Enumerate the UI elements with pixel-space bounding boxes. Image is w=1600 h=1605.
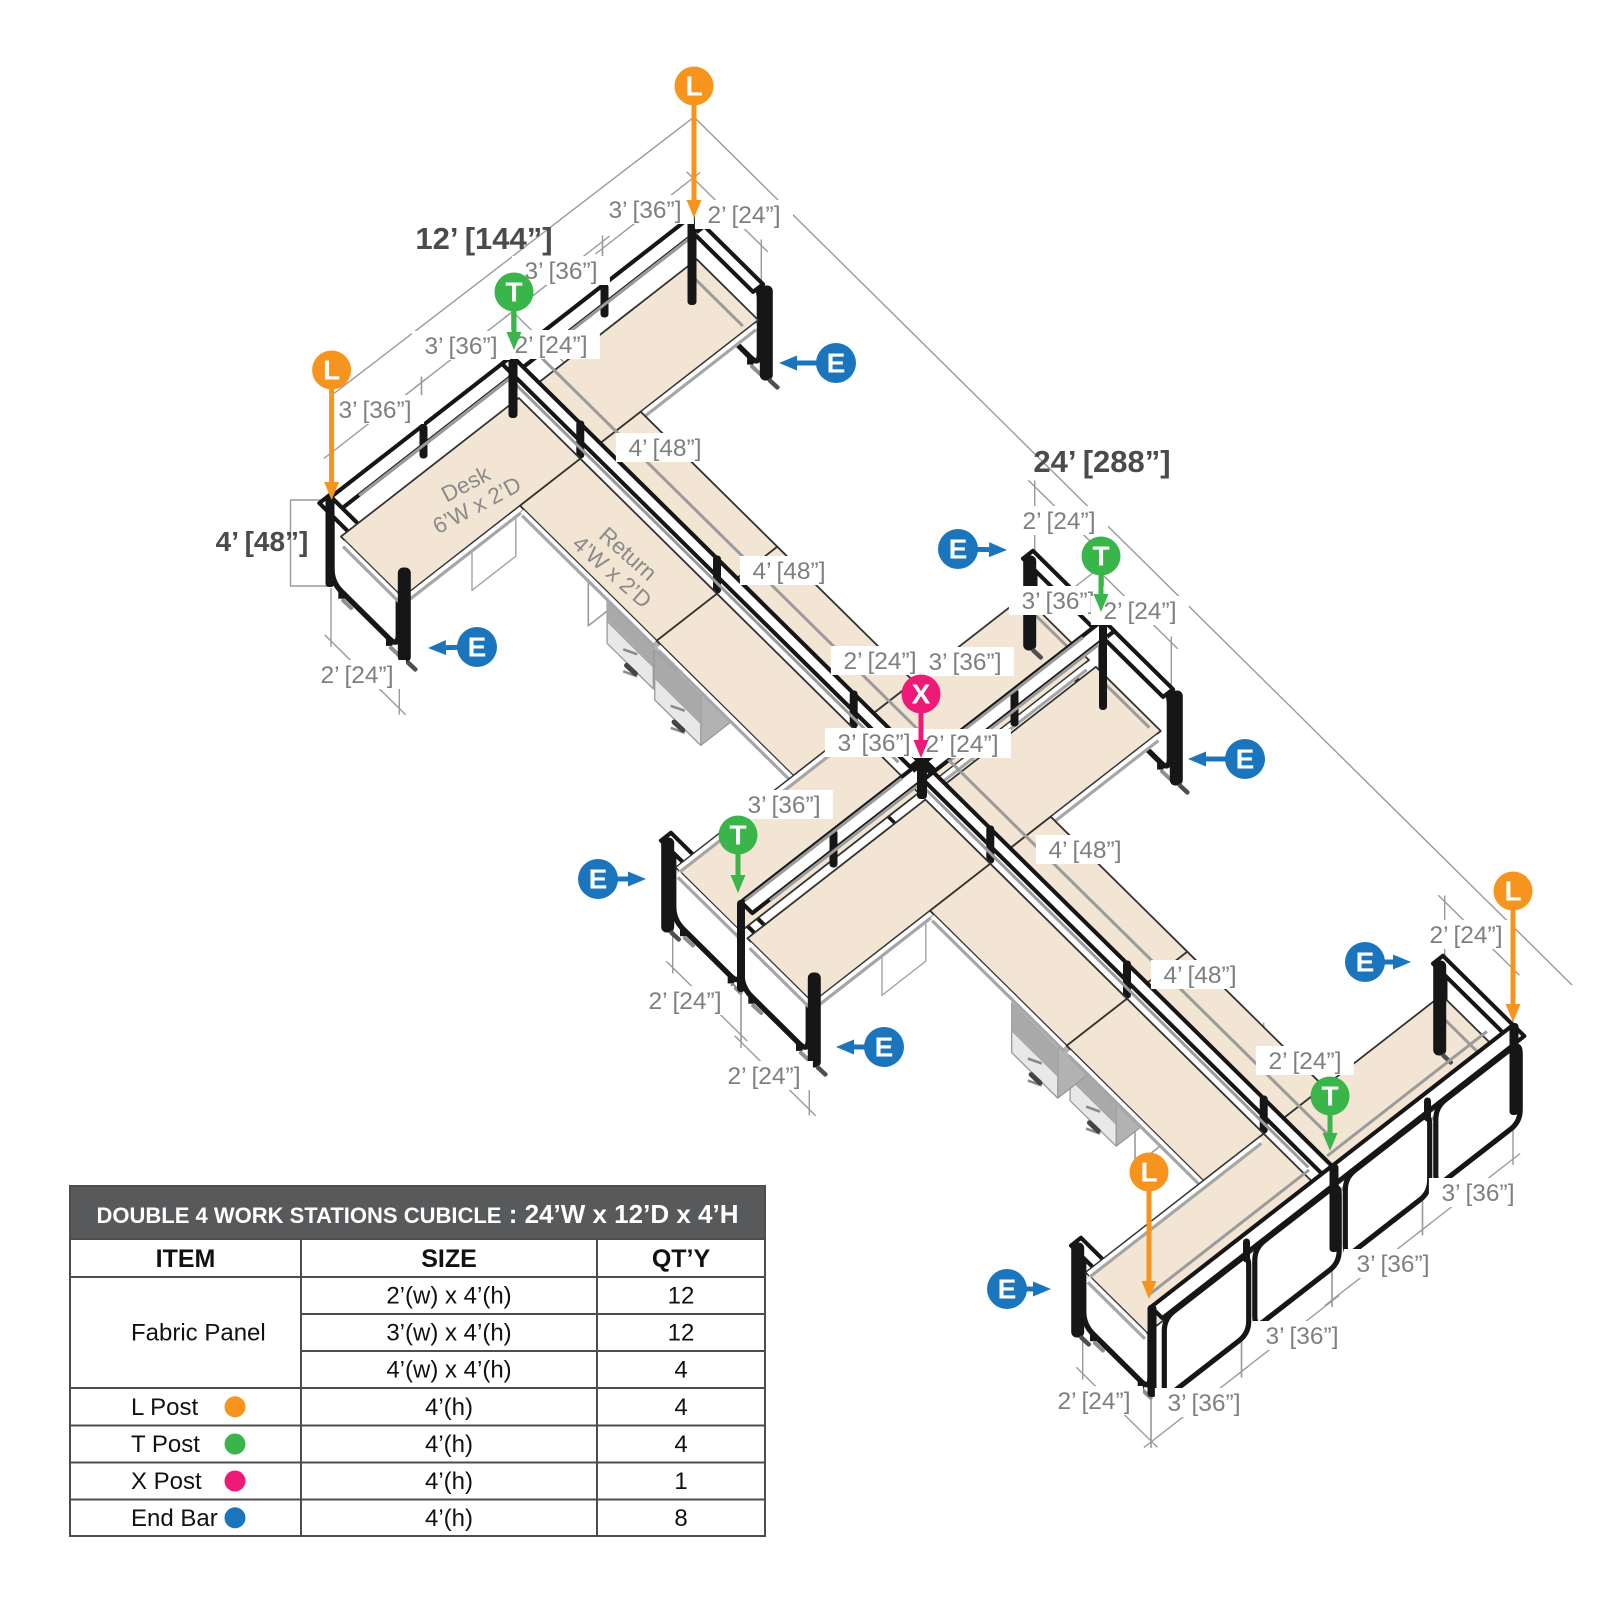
svg-text:24’ [288”]: 24’ [288”] bbox=[1033, 444, 1170, 479]
svg-text:T: T bbox=[1321, 1081, 1338, 1112]
svg-text:4: 4 bbox=[674, 1431, 687, 1458]
svg-text:End Bar: End Bar bbox=[131, 1505, 218, 1532]
svg-text:3’ [36”]: 3’ [36”] bbox=[1266, 1323, 1339, 1350]
svg-text:SIZE: SIZE bbox=[421, 1245, 477, 1273]
svg-text:3’ [36”]: 3’ [36”] bbox=[1442, 1180, 1515, 1207]
svg-text:2’ [24”]: 2’ [24”] bbox=[1023, 508, 1096, 535]
svg-text:L: L bbox=[1140, 1157, 1157, 1188]
svg-text:3’ [36”]: 3’ [36”] bbox=[1357, 1251, 1430, 1278]
svg-text:3’ [36”]: 3’ [36”] bbox=[425, 333, 498, 360]
svg-text:4’ [48”]: 4’ [48”] bbox=[753, 558, 826, 585]
svg-text:2’ [24”]: 2’ [24”] bbox=[1058, 1388, 1131, 1415]
svg-text:L: L bbox=[685, 71, 702, 102]
svg-text:2’ [24”]: 2’ [24”] bbox=[1430, 922, 1503, 949]
svg-text:4’(h): 4’(h) bbox=[425, 1505, 473, 1532]
svg-text:X: X bbox=[912, 679, 931, 710]
svg-text:E: E bbox=[827, 348, 846, 379]
svg-text:L Post: L Post bbox=[131, 1394, 198, 1421]
svg-text:T: T bbox=[1092, 541, 1109, 572]
svg-text:E: E bbox=[875, 1032, 894, 1063]
svg-text:2’ [24”]: 2’ [24”] bbox=[728, 1063, 801, 1090]
svg-text:QT’Y: QT’Y bbox=[652, 1245, 711, 1273]
svg-text:12’ [144”]: 12’ [144”] bbox=[415, 221, 552, 256]
svg-text:2’ [24”]: 2’ [24”] bbox=[515, 332, 588, 359]
svg-text:ITEM: ITEM bbox=[156, 1245, 216, 1273]
svg-text:2’ [24”]: 2’ [24”] bbox=[844, 648, 917, 675]
svg-text:4’ [48”]: 4’ [48”] bbox=[629, 435, 702, 462]
svg-text:DOUBLE 4 WORK STATIONS CUBICL: DOUBLE 4 WORK STATIONS CUBICLE : 24’W x … bbox=[97, 1199, 739, 1229]
svg-text:1: 1 bbox=[674, 1468, 687, 1495]
svg-text:3’ [36”]: 3’ [36”] bbox=[1022, 588, 1095, 615]
svg-text:4’(w) x 4’(h): 4’(w) x 4’(h) bbox=[386, 1357, 511, 1384]
svg-text:3’ [36”]: 3’ [36”] bbox=[609, 197, 682, 224]
svg-text:4: 4 bbox=[674, 1394, 687, 1421]
svg-text:4’ [48”]: 4’ [48”] bbox=[1049, 837, 1122, 864]
svg-text:12: 12 bbox=[668, 1283, 695, 1310]
svg-text:4’ [48”]: 4’ [48”] bbox=[216, 526, 309, 557]
svg-text:3’ [36”]: 3’ [36”] bbox=[1168, 1390, 1241, 1417]
svg-text:2’ [24”]: 2’ [24”] bbox=[649, 988, 722, 1015]
svg-text:2’(w) x 4’(h): 2’(w) x 4’(h) bbox=[386, 1283, 511, 1310]
svg-text:T: T bbox=[729, 820, 746, 851]
svg-text:8: 8 bbox=[674, 1505, 687, 1532]
svg-text:Fabric Panel: Fabric Panel bbox=[131, 1320, 266, 1347]
svg-text:4’(h): 4’(h) bbox=[425, 1431, 473, 1458]
svg-text:2’ [24”]: 2’ [24”] bbox=[321, 662, 394, 689]
svg-text:E: E bbox=[589, 864, 608, 895]
svg-text:E: E bbox=[949, 534, 968, 565]
svg-text:3’ [36”]: 3’ [36”] bbox=[748, 792, 821, 819]
svg-text:4’(h): 4’(h) bbox=[425, 1468, 473, 1495]
svg-text:12: 12 bbox=[668, 1320, 695, 1347]
svg-text:E: E bbox=[1236, 744, 1255, 775]
svg-text:2’ [24”]: 2’ [24”] bbox=[1104, 598, 1177, 625]
svg-text:2’ [24”]: 2’ [24”] bbox=[1269, 1048, 1342, 1075]
svg-text:4: 4 bbox=[674, 1357, 687, 1384]
svg-text:L: L bbox=[323, 355, 340, 386]
svg-text:2’ [24”]: 2’ [24”] bbox=[708, 202, 781, 229]
svg-text:3’ [36”]: 3’ [36”] bbox=[929, 649, 1002, 676]
svg-text:X Post: X Post bbox=[131, 1468, 202, 1495]
svg-text:E: E bbox=[998, 1274, 1017, 1305]
svg-text:E: E bbox=[468, 632, 487, 663]
svg-text:3’ [36”]: 3’ [36”] bbox=[339, 397, 412, 424]
svg-text:3’(w) x 4’(h): 3’(w) x 4’(h) bbox=[386, 1320, 511, 1347]
svg-text:4’ [48”]: 4’ [48”] bbox=[1164, 962, 1237, 989]
svg-text:E: E bbox=[1356, 947, 1375, 978]
svg-text:L: L bbox=[1504, 876, 1521, 907]
svg-text:T: T bbox=[505, 277, 522, 308]
svg-text:3’ [36”]: 3’ [36”] bbox=[838, 730, 911, 757]
svg-text:2’ [24”]: 2’ [24”] bbox=[926, 731, 999, 758]
svg-text:T Post: T Post bbox=[131, 1431, 200, 1458]
svg-text:3’ [36”]: 3’ [36”] bbox=[525, 258, 598, 285]
svg-text:4’(h): 4’(h) bbox=[425, 1394, 473, 1421]
